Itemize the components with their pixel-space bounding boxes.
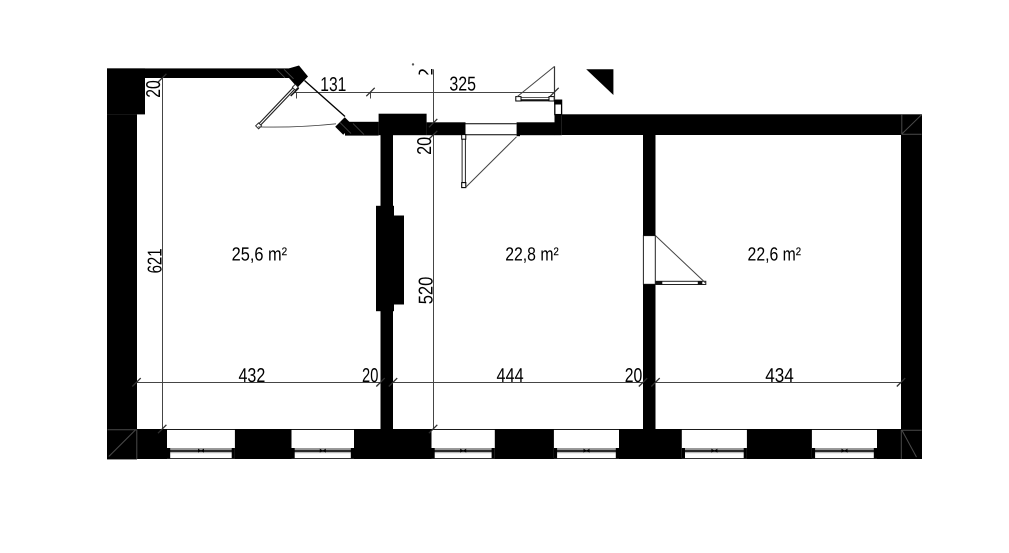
svg-text:25,6 m²: 25,6 m²: [232, 245, 288, 266]
svg-text:20: 20: [625, 365, 643, 387]
svg-text:432: 432: [239, 365, 266, 387]
svg-text:434: 434: [765, 365, 794, 387]
svg-text:22,8 m²: 22,8 m²: [505, 245, 559, 266]
svg-text:621: 621: [145, 248, 167, 273]
svg-text:131: 131: [320, 74, 346, 96]
svg-text:444: 444: [497, 365, 524, 387]
svg-text:325: 325: [449, 74, 476, 96]
svg-text:22,6 m²: 22,6 m²: [748, 245, 802, 266]
svg-text:20: 20: [414, 137, 436, 155]
svg-text:20: 20: [362, 365, 378, 387]
svg-text:520: 520: [415, 277, 437, 305]
svg-text:20: 20: [143, 80, 165, 98]
